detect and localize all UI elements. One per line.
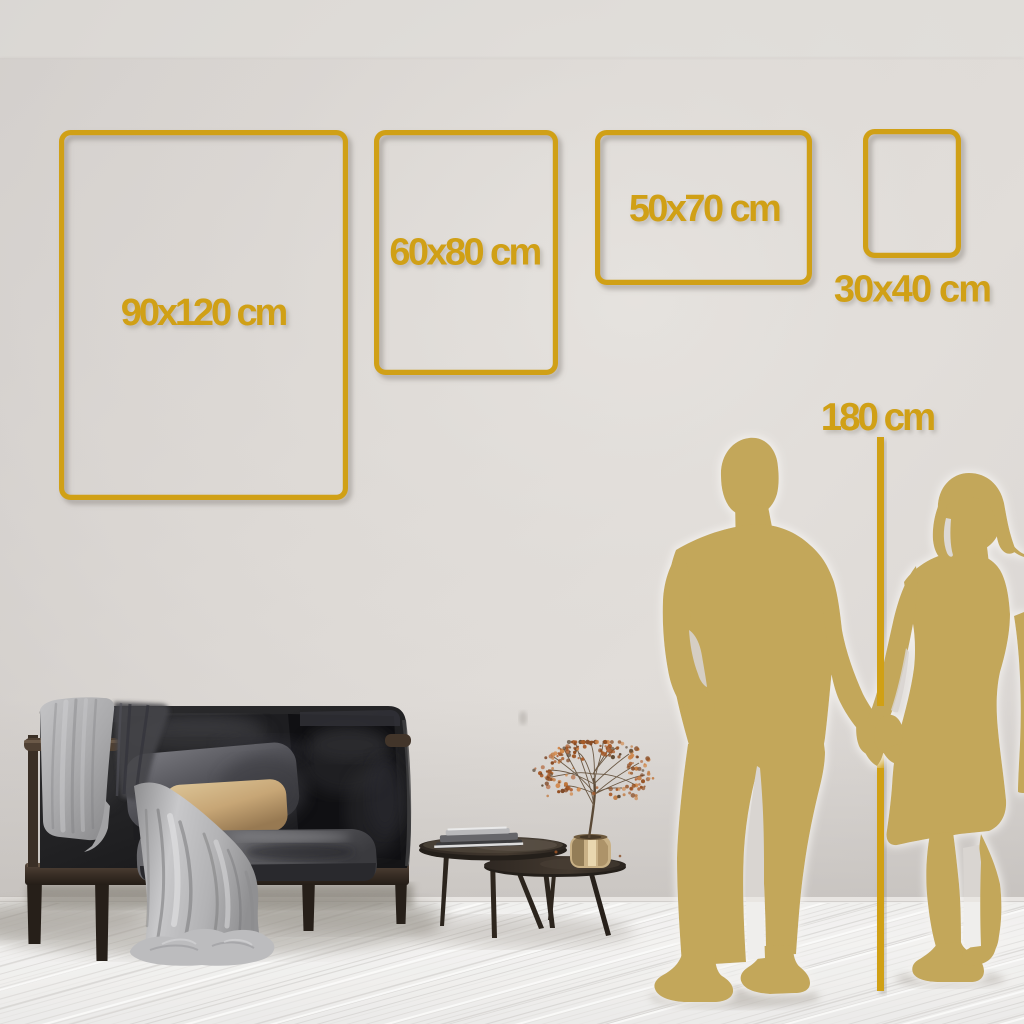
svg-text:50x70 cm: 50x70 cm: [629, 188, 780, 230]
svg-text:90x120 cm: 90x120 cm: [121, 292, 287, 334]
svg-text:60x80 cm: 60x80 cm: [389, 232, 540, 274]
svg-text:180 cm: 180 cm: [821, 396, 934, 439]
svg-text:30x40 cm: 30x40 cm: [834, 269, 990, 311]
